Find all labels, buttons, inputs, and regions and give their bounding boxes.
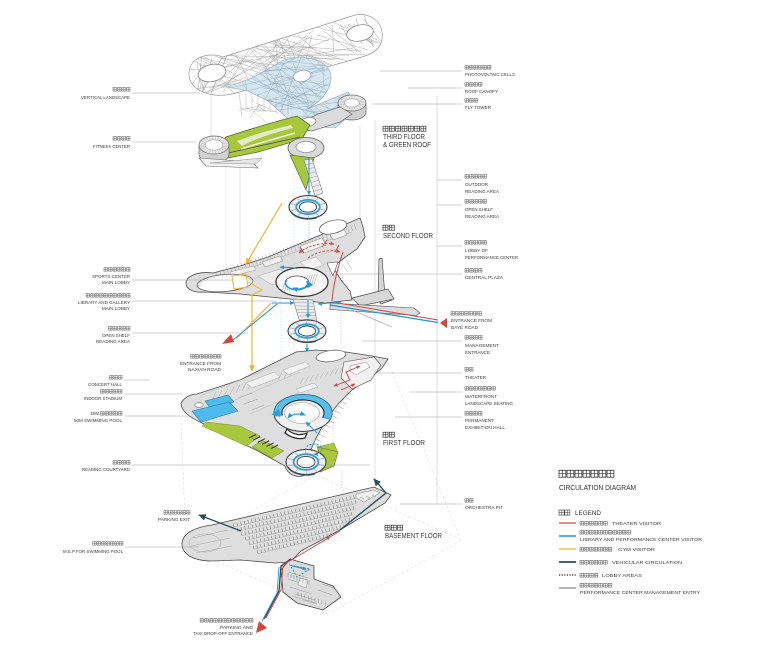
- svg-text:ENTRANCE FROM: ENTRANCE FROM: [180, 361, 221, 366]
- svg-text:& GREEN ROOF: & GREEN ROOF: [383, 142, 431, 149]
- svg-text:VEHICULAR CIRCULATION: VEHICULAR CIRCULATION: [612, 560, 683, 566]
- svg-text:READING AREA: READING AREA: [96, 339, 131, 344]
- svg-text:OPEN SHELF: OPEN SHELF: [102, 333, 130, 338]
- svg-text:THEATER: THEATER: [465, 375, 487, 380]
- svg-text:OUTDOOR: OUTDOOR: [465, 182, 489, 187]
- svg-text:NAXIAN ROAD: NAXIAN ROAD: [188, 367, 222, 372]
- svg-text:SECOND FLOOR: SECOND FLOOR: [383, 233, 433, 240]
- svg-text:CONCERT HALL: CONCERT HALL: [88, 382, 122, 387]
- svg-text:MANAGEMENT: MANAGEMENT: [465, 343, 499, 348]
- svg-text:EXHIBITION HALL: EXHIBITION HALL: [465, 425, 505, 430]
- svg-text:50M SWIMMING POOL: 50M SWIMMING POOL: [74, 418, 122, 423]
- svg-text:BASEMENT FLOOR: BASEMENT FLOOR: [385, 533, 442, 540]
- svg-text:CIRCULATION DIAGRAM: CIRCULATION DIAGRAM: [559, 483, 636, 492]
- svg-text:THEATER VISITOR: THEATER VISITOR: [612, 521, 662, 527]
- svg-text:LANDSCAPE SEATING: LANDSCAPE SEATING: [465, 401, 513, 406]
- svg-text:ROOF CANOPY: ROOF CANOPY: [465, 89, 498, 94]
- svg-text:ORCHESTRA PIT: ORCHESTRA PIT: [465, 505, 503, 510]
- svg-text:50M: 50M: [90, 411, 99, 416]
- svg-text:FIRST FLOOR: FIRST FLOOR: [383, 440, 425, 447]
- svg-text:TAXI DROP-OFF ENTRANCE: TAXI DROP-OFF ENTRANCE: [193, 631, 253, 636]
- svg-text:M.E.P FOR SWIMMING POOL: M.E.P FOR SWIMMING POOL: [63, 549, 123, 554]
- svg-text:PERMANENT: PERMANENT: [465, 418, 494, 423]
- svg-text:PARKING EXIT: PARKING EXIT: [158, 517, 190, 522]
- svg-text:WATERFRONT: WATERFRONT: [465, 394, 497, 399]
- svg-text:ENTRANCE FROM: ENTRANCE FROM: [451, 318, 492, 323]
- svg-text:SPORTS CENTER: SPORTS CENTER: [92, 274, 131, 279]
- svg-text:FITNESS CENTER: FITNESS CENTER: [93, 144, 131, 149]
- svg-text:MAIN LOBBY: MAIN LOBBY: [102, 280, 130, 285]
- svg-text:READING COURTYARD: READING COURTYARD: [82, 467, 131, 472]
- svg-text:BAYE ROAD: BAYE ROAD: [451, 325, 479, 330]
- svg-text:THIRD FLOOR: THIRD FLOOR: [383, 134, 425, 141]
- svg-text:LEGEND: LEGEND: [575, 510, 601, 517]
- svg-text:OPEN SHELF: OPEN SHELF: [465, 207, 493, 212]
- svg-text:PARKING AND: PARKING AND: [220, 625, 254, 630]
- svg-text:INDOOR STADIUM: INDOOR STADIUM: [84, 396, 122, 401]
- svg-text:CENTRAL PLAZA: CENTRAL PLAZA: [465, 275, 504, 280]
- svg-text:PHOTOVOLTAIC CELLS: PHOTOVOLTAIC CELLS: [465, 72, 515, 77]
- svg-text:LIBRARY AND GALLERY: LIBRARY AND GALLERY: [78, 300, 130, 305]
- svg-text:PERFORMANCE CENTER MANAGEMENT: PERFORMANCE CENTER MANAGEMENT ENTRY: [580, 590, 701, 596]
- svg-text:LOBBY OF: LOBBY OF: [465, 248, 488, 253]
- svg-text:GYM VISITOR: GYM VISITOR: [618, 547, 656, 553]
- svg-text:LOBBY AREAS: LOBBY AREAS: [602, 573, 642, 579]
- svg-text:PERFORMANCE CENTER: PERFORMANCE CENTER: [465, 255, 519, 260]
- svg-text:FLY TOWER: FLY TOWER: [465, 105, 492, 110]
- svg-text:MAIN LOBBY: MAIN LOBBY: [102, 306, 130, 311]
- svg-text:ENTRANCE: ENTRANCE: [465, 350, 490, 355]
- svg-text:LIBRARY AND PERFORMANCE CENTER: LIBRARY AND PERFORMANCE CENTER VISITOR: [580, 537, 703, 543]
- svg-text:VERTICAL LANDSCAPE: VERTICAL LANDSCAPE: [81, 95, 130, 100]
- svg-text:READING AREA: READING AREA: [465, 189, 500, 194]
- svg-text:READING AREA: READING AREA: [465, 214, 500, 219]
